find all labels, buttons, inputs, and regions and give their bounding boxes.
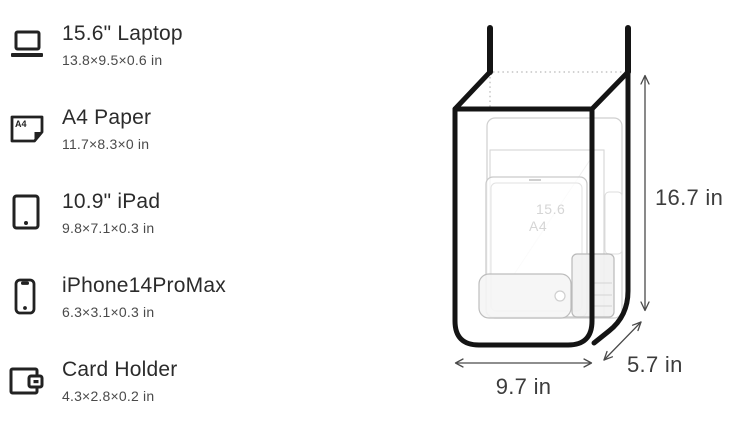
paper-inner-label: A4 xyxy=(529,218,547,234)
depth-dimension-label: 5.7 in xyxy=(627,352,683,378)
laptop-inner-label: 15.6 xyxy=(536,201,565,217)
bag-contents-outlines xyxy=(479,118,622,318)
height-dimension-label: 16.7 in xyxy=(655,185,723,211)
width-dimension-label: 9.7 in xyxy=(455,374,592,400)
bag-hidden-edges xyxy=(490,72,625,112)
product-dimensions-panel: 15.6" Laptop 13.8×9.5×0.6 in A4 A4 Paper… xyxy=(0,0,750,426)
bag-dimension-diagram: 16.7 in 9.7 in 5.7 in 15.6 A4 xyxy=(0,0,750,426)
